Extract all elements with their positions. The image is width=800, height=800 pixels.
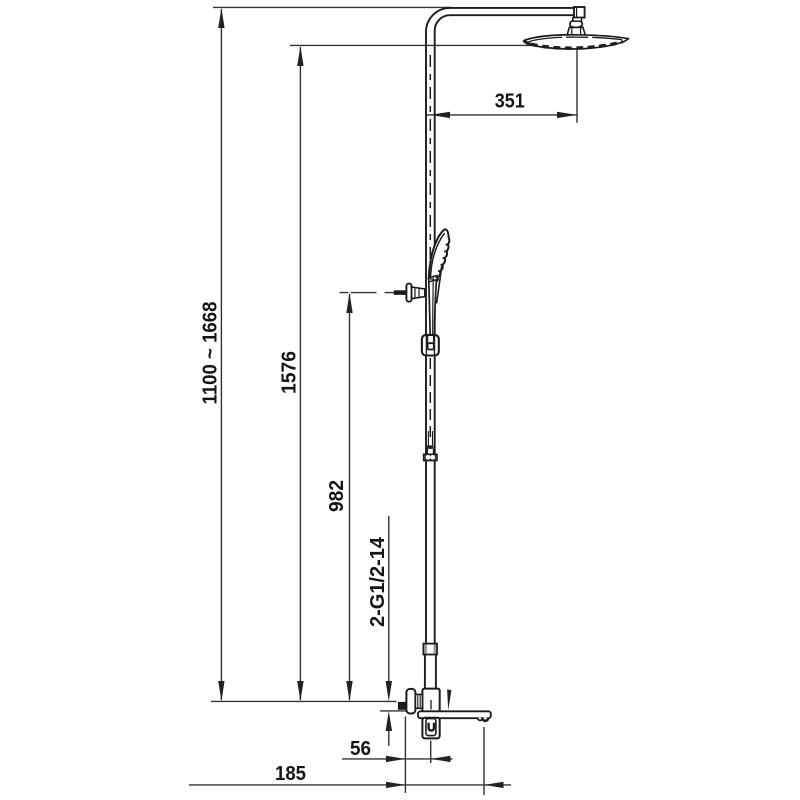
svg-text:56: 56 xyxy=(350,738,371,760)
svg-text:185: 185 xyxy=(275,763,306,785)
svg-text:2-G1/2-14: 2-G1/2-14 xyxy=(367,536,389,627)
svg-text:982: 982 xyxy=(326,480,348,512)
svg-text:1576: 1576 xyxy=(279,351,301,394)
svg-text:351: 351 xyxy=(495,91,525,113)
svg-text:1100 ~ 1668: 1100 ~ 1668 xyxy=(200,302,222,405)
